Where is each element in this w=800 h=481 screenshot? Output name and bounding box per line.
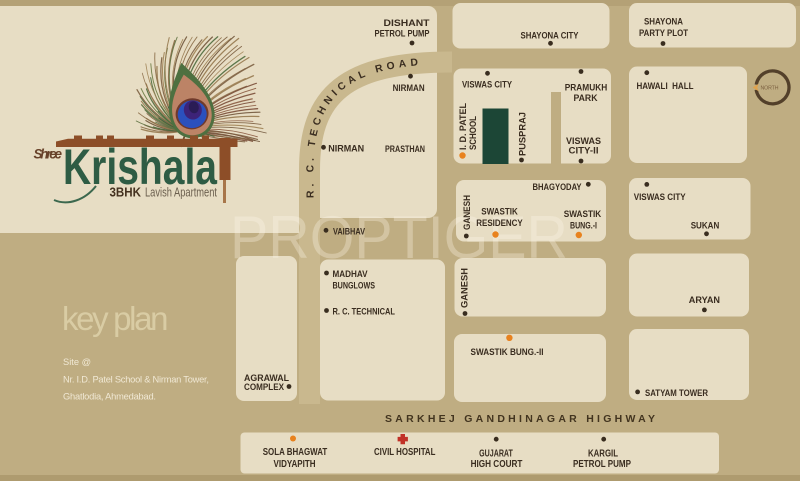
svg-text:GANESH: GANESH: [461, 195, 472, 230]
svg-text:SHAYONA CITY: SHAYONA CITY: [521, 29, 580, 40]
svg-text:PARK: PARK: [574, 92, 598, 103]
svg-text:Site @: Site @: [63, 357, 91, 367]
svg-text:SWASTIK BUNG.-II: SWASTIK BUNG.-II: [471, 346, 544, 357]
svg-text:PETROL PUMP: PETROL PUMP: [375, 28, 430, 39]
svg-text:MADHAV: MADHAV: [333, 268, 369, 279]
svg-text:R. C. TECHNICAL: R. C. TECHNICAL: [333, 306, 396, 317]
svg-text:Nr. I.D. Patel School & Nirman: Nr. I.D. Patel School & Nirman Tower,: [63, 375, 209, 385]
svg-text:SWASTIK: SWASTIK: [481, 206, 518, 217]
svg-text:SATYAM TOWER: SATYAM TOWER: [645, 387, 708, 398]
svg-text:NIRMAN: NIRMAN: [328, 143, 364, 154]
svg-text:BUNG.-I: BUNG.-I: [570, 220, 597, 231]
svg-text:PETROL PUMP: PETROL PUMP: [573, 459, 631, 470]
svg-text:Shree: Shree: [34, 147, 63, 162]
svg-text:SHAYONA: SHAYONA: [644, 16, 683, 27]
svg-text:SOLA BHAGWAT: SOLA BHAGWAT: [263, 447, 328, 458]
svg-text:PUSPRAJ: PUSPRAJ: [517, 112, 528, 156]
svg-text:BUNGLOWS: BUNGLOWS: [333, 280, 376, 291]
svg-text:VISWAS CITY: VISWAS CITY: [634, 191, 687, 202]
svg-text:BHAGYODAY: BHAGYODAY: [533, 181, 583, 192]
svg-text:COMPLEX: COMPLEX: [244, 381, 285, 392]
svg-text:VAIBHAV: VAIBHAV: [333, 226, 366, 237]
svg-text:NIRMAN: NIRMAN: [393, 82, 425, 93]
svg-text:VISWAS CITY: VISWAS CITY: [462, 78, 513, 89]
svg-text:SWASTIK: SWASTIK: [564, 208, 602, 219]
svg-text:Lavish Apartment: Lavish Apartment: [145, 186, 217, 200]
svg-text:VIDYAPITH: VIDYAPITH: [274, 459, 316, 470]
svg-text:SCHOOL: SCHOOL: [467, 116, 478, 150]
svg-text:PRASTHAN: PRASTHAN: [385, 143, 425, 154]
svg-text:ARYAN: ARYAN: [689, 294, 720, 305]
svg-text:RESIDENCY: RESIDENCY: [476, 217, 523, 228]
svg-text:key plan: key plan: [62, 300, 169, 337]
svg-text:NORTH: NORTH: [761, 86, 779, 92]
svg-text:SUKAN: SUKAN: [691, 219, 720, 230]
svg-text:DISHANT: DISHANT: [384, 17, 430, 28]
svg-text:GANESH: GANESH: [459, 268, 470, 308]
svg-text:CIVIL HOSPITAL: CIVIL HOSPITAL: [374, 447, 436, 458]
svg-text:3BHK: 3BHK: [110, 185, 142, 200]
svg-text:HIGH COURT: HIGH COURT: [471, 459, 523, 470]
svg-text:Ghatlodia, Ahmedabad.: Ghatlodia, Ahmedabad.: [63, 392, 156, 402]
svg-text:HAWALI HALL: HAWALI HALL: [637, 80, 694, 91]
svg-text:PRAMUKH: PRAMUKH: [565, 82, 608, 93]
svg-text:CITY-II: CITY-II: [569, 144, 599, 155]
svg-text:PARTY PLOT: PARTY PLOT: [639, 27, 688, 38]
